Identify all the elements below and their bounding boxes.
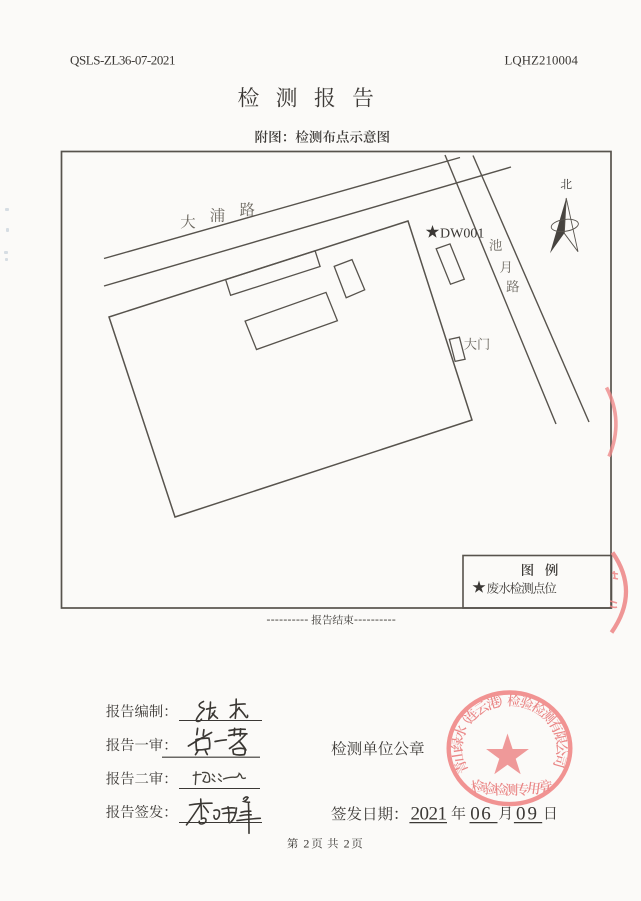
svg-text:2: 2 — [303, 836, 309, 850]
svg-text:----------: ---------- — [354, 613, 396, 626]
svg-text:2021: 2021 — [411, 804, 447, 825]
svg-text:09: 09 — [516, 804, 539, 825]
svg-text:LQHZ210004: LQHZ210004 — [505, 53, 579, 67]
svg-text:06: 06 — [470, 804, 492, 825]
svg-text:----------: ---------- — [267, 613, 309, 626]
svg-text:DW001: DW001 — [440, 227, 484, 242]
svg-text:2: 2 — [344, 836, 350, 850]
svg-text:QSLS-ZL36-07-2021: QSLS-ZL36-07-2021 — [70, 52, 175, 67]
